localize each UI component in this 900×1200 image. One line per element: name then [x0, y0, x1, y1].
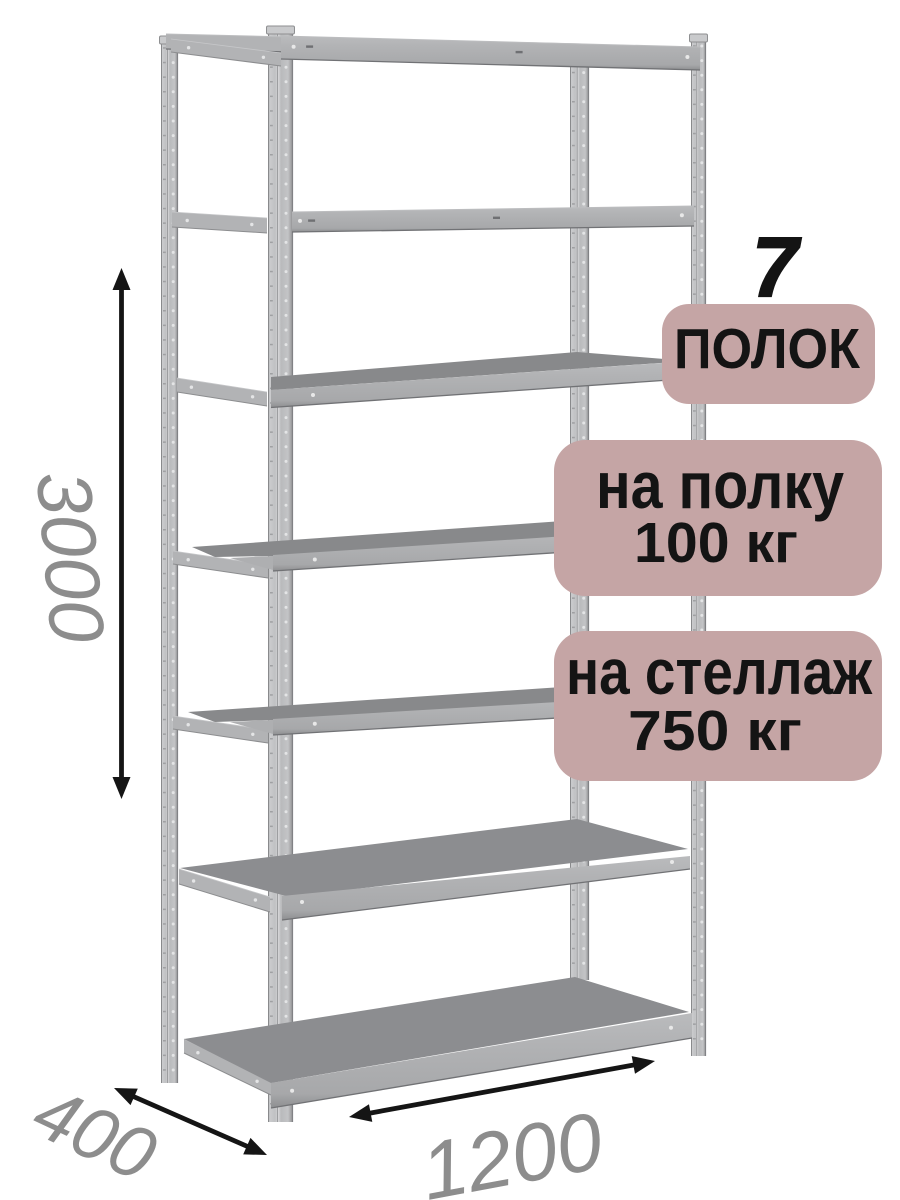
- svg-text:400: 400: [21, 1070, 168, 1197]
- svg-text:7: 7: [752, 220, 801, 314]
- svg-text:ПОЛОК: ПОЛОК: [674, 317, 860, 381]
- svg-text:750 кг: 750 кг: [628, 699, 802, 763]
- svg-text:на стеллаж: на стеллаж: [566, 636, 873, 708]
- svg-text:1200: 1200: [414, 1096, 609, 1200]
- svg-text:3000: 3000: [20, 468, 121, 646]
- svg-text:100 кг: 100 кг: [634, 511, 798, 575]
